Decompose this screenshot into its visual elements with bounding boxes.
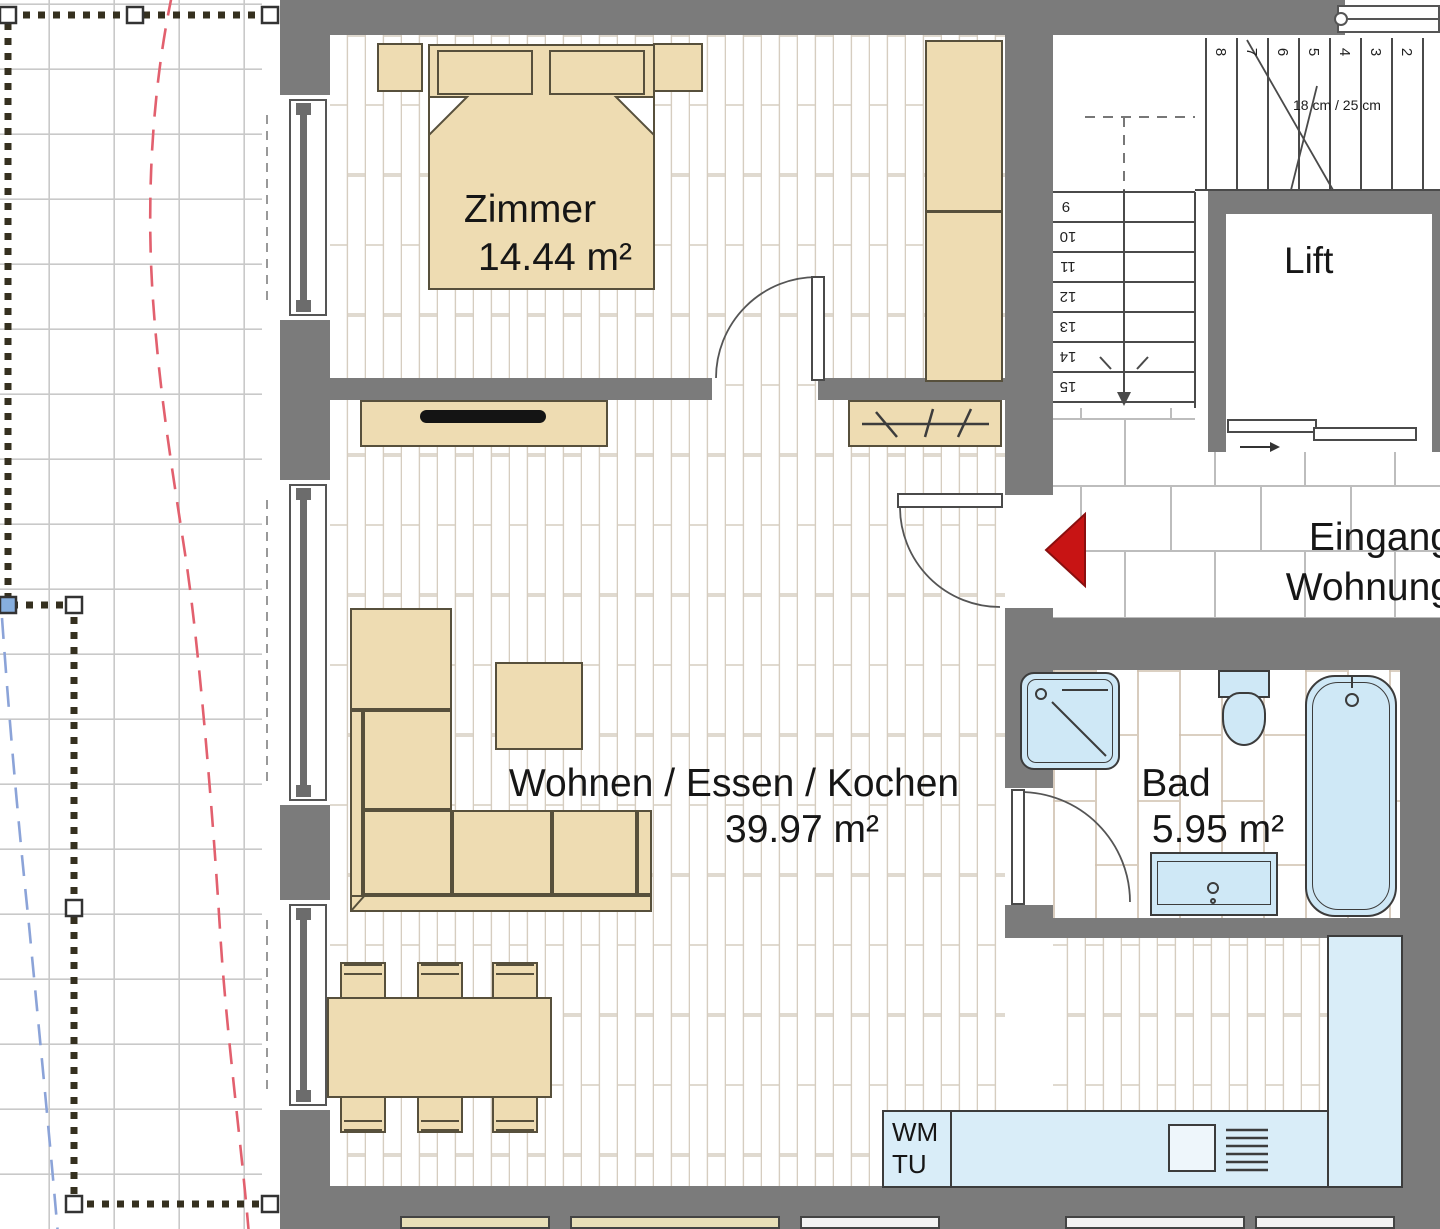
bathtub-inner [1312,682,1390,910]
selection-handle[interactable] [262,7,278,23]
floor-plan: WM TU Zimmer 14.44 m² Wohnen / Essen / K… [0,0,1440,1229]
dining-chair [340,1096,386,1133]
cutoff-element [400,1216,550,1229]
window-cap [296,1090,311,1102]
toilet-bowl [1222,692,1266,746]
window-cap [296,300,311,312]
bad-name: Bad [1076,762,1276,806]
vanity [1150,852,1278,916]
bathtub [1305,675,1397,917]
dining-window [289,904,327,1106]
sofa-seat [363,710,452,810]
dining-chair [492,1096,538,1133]
sofa-back-bottom [350,895,652,912]
window-glass-line [1339,18,1440,20]
window-glass [300,115,307,300]
cutoff-element [1065,1216,1245,1229]
sofa-back-left [350,710,363,912]
wardrobe-lower [925,210,1003,382]
nightstand-right [653,43,703,92]
wohnen-name: Wohnen / Essen / Kochen [484,762,984,806]
bedroom-window [289,99,327,316]
selection-handle-active[interactable] [0,597,16,613]
wall-lift-right [1432,190,1440,452]
stair-hall-floor [1053,408,1195,618]
window-glass [300,920,307,1090]
tv [420,410,546,423]
wall-hall-bath [1053,618,1440,670]
zimmer-name: Zimmer [380,188,680,232]
dining-chair [417,962,463,999]
cutoff-element [800,1216,940,1229]
wall-bedroom-a [330,378,712,400]
bad-area: 5.95 m² [1118,808,1318,852]
wall-lift-top [1208,190,1440,214]
selection-handle[interactable] [262,1196,278,1212]
washer-label: WM [892,1116,938,1148]
window-glass [300,500,307,785]
dining-chair [340,962,386,999]
coat-rack [848,400,1002,447]
sofa-seat-corner [363,810,452,895]
zimmer-area: 14.44 m² [405,236,705,280]
window-top-right [1337,5,1440,33]
wall-right-stub [1005,905,1053,938]
window-cap [296,908,311,920]
lift-name: Lift [1284,240,1333,282]
selection-handle[interactable] [66,1196,82,1212]
nightstand-left [377,43,423,92]
cooktop [1168,1124,1216,1172]
selection-handle[interactable] [0,7,16,23]
eingang-line1: Eingang [1200,513,1440,563]
dining-chair [492,962,538,999]
wohnen-area: 39.97 m² [552,808,1052,852]
shower-inner [1027,679,1113,763]
wall-top-stairwell [1055,0,1345,35]
eingang-line2: Wohnung [1200,563,1440,613]
wardrobe-upper [925,40,1003,212]
selection-handle[interactable] [66,597,82,613]
living-window [289,484,327,801]
sideboard [360,400,608,447]
selection-handle[interactable] [127,7,143,23]
window-cap [296,103,311,115]
sofa-seat [452,810,552,895]
bed-pillow-left [437,50,533,95]
cutoff-element [570,1216,780,1229]
floor-textures [0,0,1440,1229]
wall-top-apartment [280,0,1055,35]
selection-handle[interactable] [66,900,82,916]
sofa-chaise [350,608,452,710]
wall-right-edge [1400,670,1440,1186]
dryer-label: TU [892,1148,927,1180]
shower [1020,672,1120,770]
vanity-basin [1157,861,1271,905]
wall-lift-left [1208,190,1226,452]
dining-chair [417,1096,463,1133]
coffee-table [495,662,583,750]
dining-table [327,997,552,1098]
kitchen-counter-right [1327,935,1403,1188]
window-cap [296,488,311,500]
cutoff-element [1255,1216,1395,1229]
window-cap [296,785,311,797]
bed-pillow-right [549,50,645,95]
wall-right-upper [1005,35,1053,495]
